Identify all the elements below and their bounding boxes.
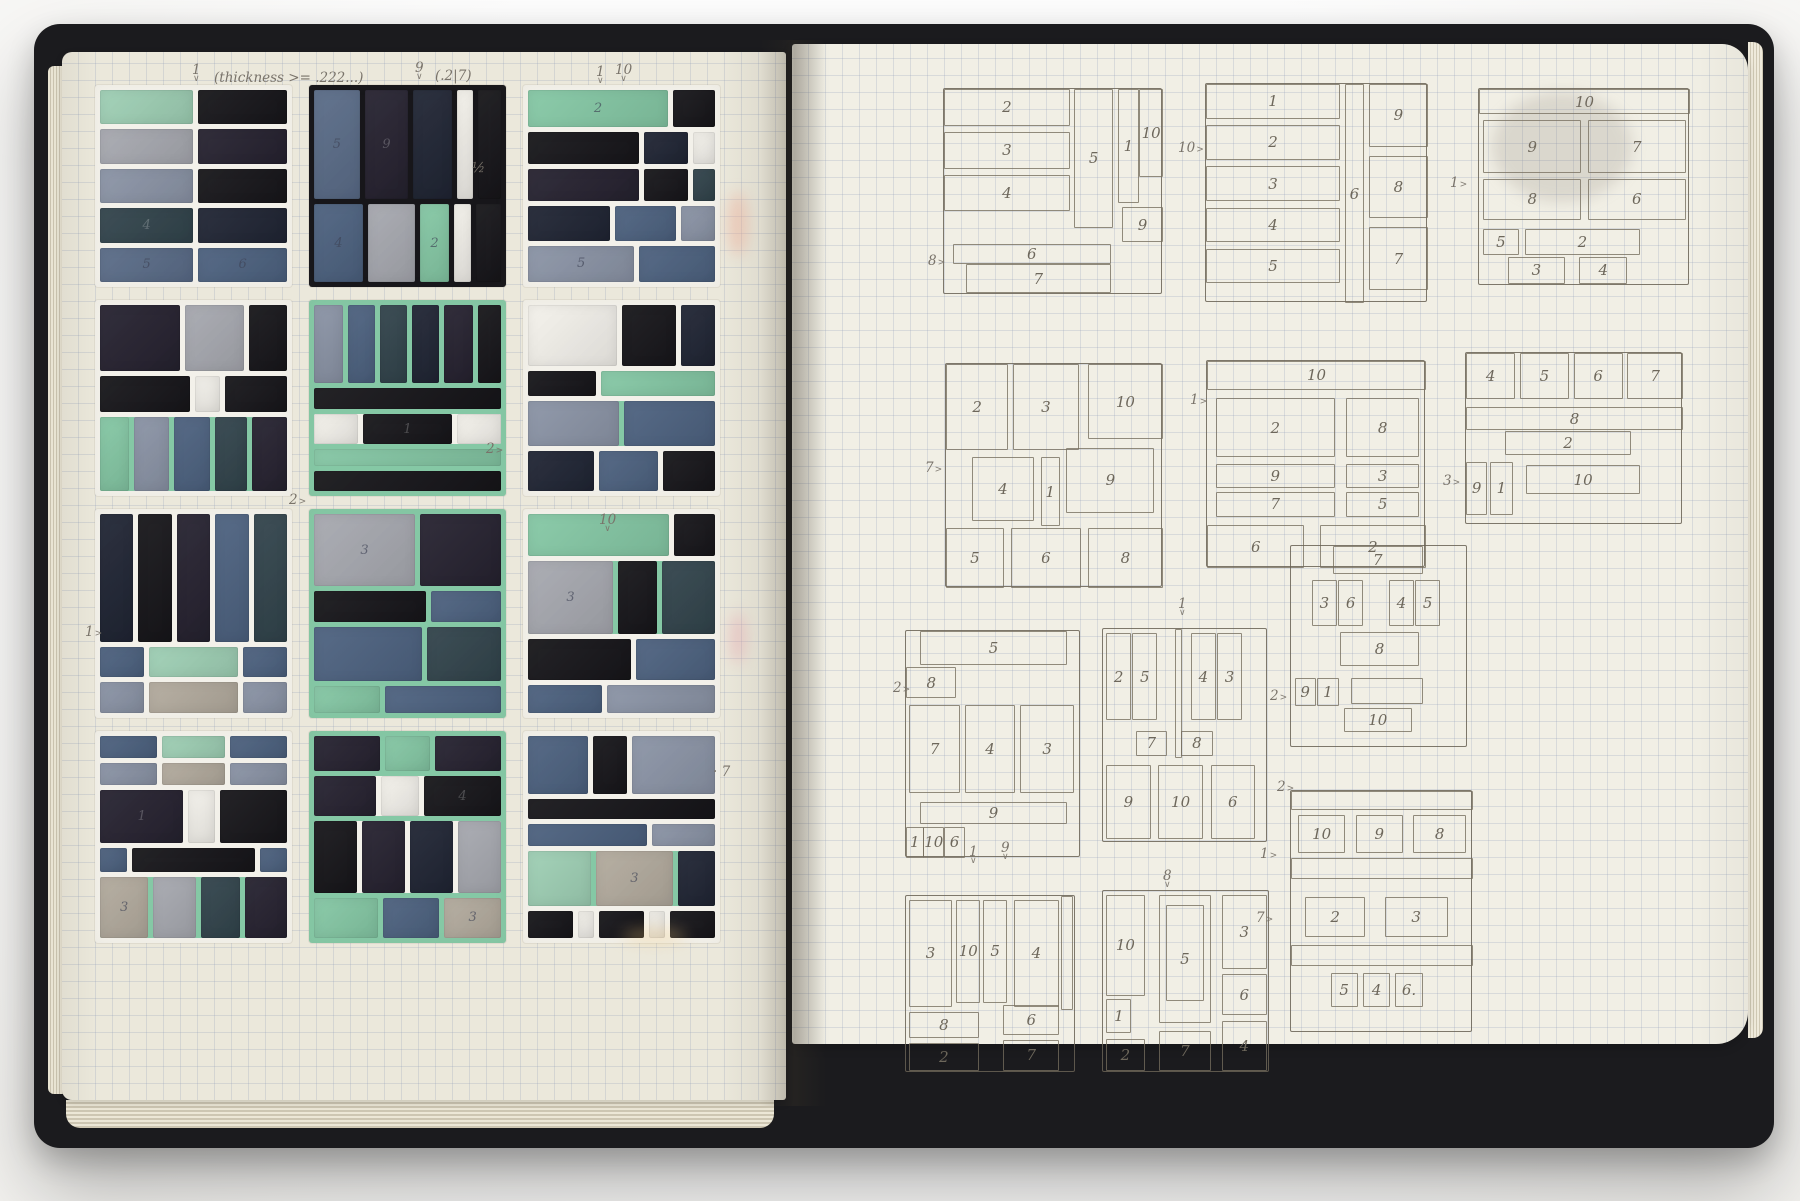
right-arrow-icon: > — [95, 629, 103, 639]
pencil-annotation: 1> — [1260, 846, 1277, 862]
pencil-annotation: 2> — [893, 680, 910, 696]
pencil-annotation: 2> — [1270, 688, 1287, 704]
sketch-cell-number: 2 — [1121, 1046, 1131, 1064]
left-page: 45659422513313433 1∨(thickness >= .222..… — [62, 52, 786, 1100]
page-stack-bottom — [66, 1100, 774, 1128]
right-annotations: 8>10>1>7>1>3>2>1∨2>1∨9∨8∨2>1>7> — [792, 44, 1748, 1044]
pencil-annotation: 2> — [289, 492, 306, 508]
right-arrow-icon: > — [938, 258, 946, 268]
right-arrow-icon: > — [1280, 693, 1288, 703]
down-arrow-icon: ∨ — [416, 74, 423, 80]
pencil-annotation: 10∨ — [615, 66, 632, 82]
right-arrow-icon: > — [1287, 784, 1295, 794]
right-arrow-icon: > — [1200, 397, 1208, 407]
annotation-text: 7 — [1256, 910, 1265, 926]
pencil-annotation: 10> — [1178, 140, 1204, 156]
right-arrow-icon: > — [1453, 478, 1461, 488]
pencil-annotation: 10∨ — [599, 516, 616, 532]
annotation-text: · 7 — [713, 764, 730, 780]
right-arrow-icon: > — [935, 465, 943, 475]
annotation-text: 1 — [85, 624, 94, 640]
right-page: 2345110967123456987109786523423101495681… — [792, 44, 1748, 1044]
pencil-annotation: (.2|7) — [435, 68, 472, 84]
pencil-annotation: 8> — [928, 253, 945, 269]
pencil-annotation: 7> — [1256, 910, 1273, 926]
pencil-annotation: 9∨ — [1001, 844, 1010, 860]
left-annotations: 1∨(thickness >= .222...)9∨(.2|7)1∨10∨½2>… — [62, 52, 786, 1100]
sketch-cell: 7 — [1003, 1040, 1059, 1072]
pencil-annotation: ½ — [472, 160, 485, 176]
down-arrow-icon: ∨ — [1179, 610, 1186, 616]
annotation-text: ½ — [472, 160, 485, 176]
pencil-annotation: 3> — [1443, 473, 1460, 489]
annotation-text: 1 — [1190, 392, 1199, 408]
pencil-annotation: (thickness >= .222...) — [214, 70, 363, 86]
annotation-text: 8 — [928, 253, 937, 269]
sketch-cell-number: 7 — [1180, 1042, 1190, 1060]
down-arrow-icon: ∨ — [620, 76, 627, 82]
annotation-text: 2 — [486, 441, 495, 457]
right-arrow-icon: > — [1196, 145, 1204, 155]
right-arrow-icon: > — [1460, 180, 1468, 190]
annotation-text: 1 — [1260, 846, 1269, 862]
sketch-cell-number: 2 — [939, 1048, 949, 1066]
pencil-annotation: 1> — [1450, 175, 1467, 191]
right-arrow-icon: > — [1266, 915, 1274, 925]
down-arrow-icon: ∨ — [193, 76, 200, 82]
pencil-annotation: 2> — [1277, 779, 1294, 795]
pencil-annotation: 2> — [486, 441, 503, 457]
right-arrow-icon: > — [903, 685, 911, 695]
annotation-text: (.2|7) — [435, 68, 472, 84]
down-arrow-icon: ∨ — [597, 78, 604, 84]
pencil-annotation: 8∨ — [1163, 872, 1172, 888]
annotation-text: 1 — [1450, 175, 1459, 191]
down-arrow-icon: ∨ — [604, 526, 611, 532]
pencil-annotation: 1> — [85, 624, 102, 640]
down-arrow-icon: ∨ — [1002, 854, 1009, 860]
right-arrow-icon: > — [299, 497, 307, 507]
pencil-annotation: 7> — [925, 460, 942, 476]
pencil-annotation: 1∨ — [596, 68, 605, 84]
pencil-annotation: 1∨ — [969, 848, 978, 864]
page-stack-right-edge — [1748, 42, 1763, 1038]
annotation-text: 10 — [1178, 140, 1195, 156]
annotation-text: 2 — [1270, 688, 1279, 704]
annotation-text: 3 — [1443, 473, 1452, 489]
right-arrow-icon: > — [496, 446, 504, 456]
pencil-annotation: 1∨ — [192, 66, 201, 82]
down-arrow-icon: ∨ — [970, 858, 977, 864]
sketch-cell: 2 — [909, 1043, 978, 1071]
annotation-text: 2 — [289, 492, 298, 508]
pencil-annotation: 1> — [1190, 392, 1207, 408]
sketch-cell-number: 7 — [1027, 1046, 1037, 1064]
annotation-text: (thickness >= .222...) — [214, 70, 363, 86]
pencil-annotation: · 7 — [713, 764, 730, 780]
down-arrow-icon: ∨ — [1164, 882, 1171, 888]
annotation-text: 2 — [1277, 779, 1286, 795]
annotation-text: 2 — [893, 680, 902, 696]
annotation-text: 7 — [925, 460, 934, 476]
photo-backdrop: 45659422513313433 1∨(thickness >= .222..… — [0, 0, 1800, 1201]
pencil-annotation: 9∨ — [415, 64, 424, 80]
right-arrow-icon: > — [1270, 851, 1278, 861]
pencil-annotation: 1∨ — [1178, 600, 1187, 616]
